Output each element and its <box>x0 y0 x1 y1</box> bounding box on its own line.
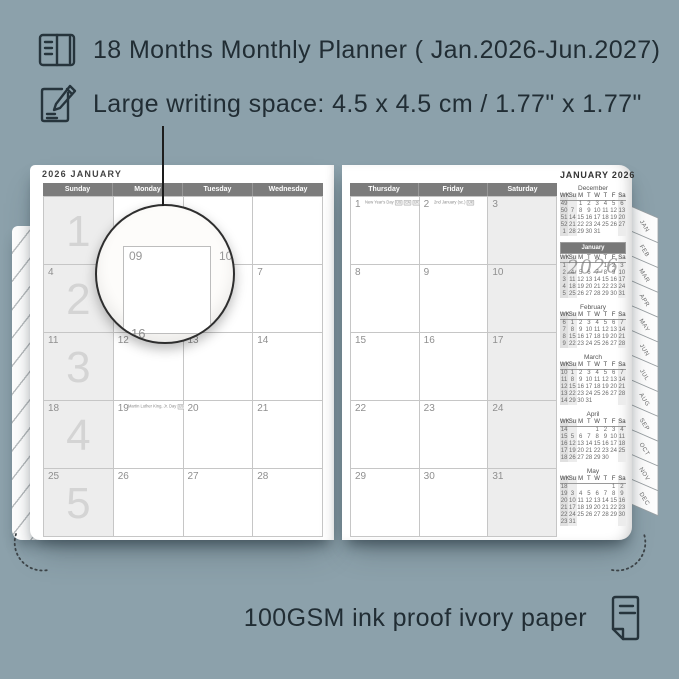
mini-day: 7 <box>618 320 626 328</box>
mini-day: 23 <box>577 391 585 398</box>
calendar-cell: 20 <box>184 401 254 469</box>
mini-calendar: WKSuMTWTFSa49123456507891011121351141516… <box>560 193 626 236</box>
mini-day: 31 <box>593 229 601 236</box>
mini-day: 1 <box>560 263 568 271</box>
mini-day: 8 <box>568 327 576 334</box>
mini-day: 25 <box>601 222 609 229</box>
day-header: Tuesday <box>183 183 253 196</box>
date-number: 15 <box>355 335 366 346</box>
mini-header-cell: T <box>601 312 609 320</box>
mini-day: 29 <box>577 229 585 236</box>
mini-day: 31 <box>618 291 626 298</box>
mini-day <box>618 455 626 462</box>
day-header: Saturday <box>488 183 557 196</box>
mini-month-title: March <box>560 354 626 361</box>
mini-day <box>593 263 601 271</box>
mini-day <box>568 484 576 492</box>
mini-day: 25 <box>618 448 626 455</box>
mini-day: 25 <box>593 391 601 398</box>
mini-header-cell: T <box>585 193 593 201</box>
mini-day: 27 <box>593 512 601 519</box>
date-number: 1 <box>355 199 361 210</box>
mini-day: 6 <box>618 201 626 209</box>
mini-day <box>610 398 618 405</box>
mini-day: 50 <box>560 208 568 215</box>
mini-day: 27 <box>610 341 618 348</box>
mini-header-cell: T <box>601 255 609 263</box>
mini-day: 31 <box>568 519 576 526</box>
mini-day: 15 <box>568 334 576 341</box>
paper-icon <box>605 594 643 642</box>
mini-day: 5 <box>601 370 609 378</box>
mini-day: 7 <box>585 434 593 441</box>
mini-day: 4 <box>601 201 609 209</box>
mini-header-cell: M <box>577 419 585 427</box>
mini-day: 24 <box>585 341 593 348</box>
mini-day: 13 <box>610 327 618 334</box>
day-header: Wednesday <box>253 183 323 196</box>
date-number: 16 <box>424 335 435 346</box>
calendar-cell: 21 <box>253 401 323 469</box>
sidebar-title: JANUARY 2026 <box>560 170 626 180</box>
mini-header-cell: WK <box>560 419 568 427</box>
mini-day: 19 <box>577 284 585 291</box>
mini-day: 16 <box>577 334 585 341</box>
planner-right-page: ThursdayFridaySaturday1New Year's DayUSC… <box>342 165 632 540</box>
mini-day: 23 <box>585 222 593 229</box>
mini-day: 23 <box>618 505 626 512</box>
mini-header-cell: F <box>610 419 618 427</box>
mini-day: 22 <box>577 222 585 229</box>
mini-day: 6 <box>593 491 601 498</box>
mini-day: 10 <box>618 270 626 277</box>
mini-day: 3 <box>593 201 601 209</box>
mini-day <box>601 519 609 526</box>
event-label: Martin Luther King, Jr. Day <box>128 405 176 409</box>
feature-line-writing-space: Large writing space: 4.5 x 4.5 cm / 1.77… <box>36 82 642 126</box>
mini-day: 20 <box>610 384 618 391</box>
mini-day: 7 <box>568 208 576 215</box>
mini-day: 22 <box>568 391 576 398</box>
mini-header-cell: T <box>601 362 609 370</box>
mini-day: 14 <box>618 377 626 384</box>
mini-day: 25 <box>568 291 576 298</box>
calendar-cell: 14 <box>253 333 323 401</box>
mini-day <box>610 519 618 526</box>
mini-day: 6 <box>577 434 585 441</box>
date-number: 2 <box>424 199 430 210</box>
mini-day: 22 <box>601 284 609 291</box>
calendar-cell: 24 <box>488 401 557 469</box>
mini-header-cell: M <box>577 362 585 370</box>
mini-day: 2 <box>610 263 618 271</box>
mini-day: 18 <box>568 284 576 291</box>
day-header-row: ThursdayFridaySaturday <box>350 183 557 196</box>
mini-day: 49 <box>560 201 568 209</box>
mini-day: 14 <box>560 427 568 435</box>
feature-line-months: 18 Months Monthly Planner ( Jan.2026-Jun… <box>36 28 660 72</box>
mini-month-highlight: January <box>560 242 626 254</box>
mini-day: 9 <box>585 208 593 215</box>
mini-day <box>585 519 593 526</box>
mini-day <box>618 398 626 405</box>
mini-header-cell: WK <box>560 362 568 370</box>
mini-day: 20 <box>610 334 618 341</box>
mini-day: 29 <box>568 398 576 405</box>
day-header-row: SundayMondayTuesdayWednesday <box>43 183 323 196</box>
right-calendar-grid: ThursdayFridaySaturday1New Year's DayUSC… <box>350 183 557 537</box>
mini-day <box>601 484 609 492</box>
mini-header-cell: M <box>577 476 585 484</box>
mini-day: 2 <box>601 427 609 435</box>
mini-header-cell: WK <box>560 255 568 263</box>
mini-day: 22 <box>560 512 568 519</box>
date-number: 28 <box>257 471 268 482</box>
mini-calendar: WKSuMTWTFSa61234567789101112131481516171… <box>560 312 626 348</box>
mini-day <box>593 519 601 526</box>
mini-header-cell: F <box>610 193 618 201</box>
mini-calendar: WKSuMTWTFSa10123456711891011121314121516… <box>560 362 626 405</box>
mini-day: 13 <box>577 441 585 448</box>
mini-day: 18 <box>601 215 609 222</box>
mini-day: 21 <box>601 505 609 512</box>
calendar-cell: 3 <box>488 197 557 265</box>
date-number: 30 <box>424 471 435 482</box>
mini-day: 8 <box>560 334 568 341</box>
mini-day <box>585 427 593 435</box>
mini-header-cell: T <box>585 312 593 320</box>
mini-day: 13 <box>610 377 618 384</box>
mini-day: 28 <box>568 229 576 236</box>
date-number: 24 <box>492 403 503 414</box>
mini-day: 11 <box>568 277 576 284</box>
planner-product-image: 18 Months Monthly Planner ( Jan.2026-Jun… <box>0 0 679 679</box>
mini-month-january: JanuaryWKSuMTWTFSa1123245678910311121314… <box>560 242 626 298</box>
day-header: Sunday <box>43 183 113 196</box>
mini-day: 6 <box>610 370 618 378</box>
mini-day: 7 <box>560 327 568 334</box>
mini-day: 24 <box>618 284 626 291</box>
calendar-cell: 15 <box>351 333 420 401</box>
mini-day: 13 <box>618 208 626 215</box>
mini-header-cell: Sa <box>618 419 626 427</box>
mini-month-march: MarchWKSuMTWTFSa101234567118910111213141… <box>560 354 626 405</box>
mini-day: 11 <box>593 327 601 334</box>
calendar-cell: 31 <box>488 469 557 537</box>
mini-day: 19 <box>601 334 609 341</box>
mini-day: 21 <box>585 448 593 455</box>
mini-day <box>618 229 626 236</box>
calendar-cell: 16 <box>420 333 489 401</box>
mini-day: 8 <box>577 208 585 215</box>
mini-day: 24 <box>593 222 601 229</box>
mini-header-cell: Sa <box>618 193 626 201</box>
calendar-cell: 525 <box>44 469 114 537</box>
mini-day: 14 <box>593 277 601 284</box>
mini-day: 23 <box>610 284 618 291</box>
mini-day: 3 <box>568 491 576 498</box>
mini-day: 4 <box>618 427 626 435</box>
calendar-cell: 311 <box>44 333 114 401</box>
mini-day: 17 <box>618 277 626 284</box>
mini-day: 12 <box>585 498 593 505</box>
mini-day: 9 <box>618 491 626 498</box>
mini-day: 2 <box>577 370 585 378</box>
mini-day: 10 <box>585 327 593 334</box>
mini-day: 16 <box>585 215 593 222</box>
mini-day: 2 <box>577 320 585 328</box>
mini-day: 12 <box>560 384 568 391</box>
mini-day: 15 <box>593 441 601 448</box>
mini-day: 7 <box>593 270 601 277</box>
mini-header-cell: Su <box>568 255 576 263</box>
mini-day: 6 <box>610 320 618 328</box>
mini-day: 3 <box>610 427 618 435</box>
mini-header-cell: M <box>577 255 585 263</box>
mini-month-april: AprilWKSuMTWTFSa141234155678910111612131… <box>560 411 626 462</box>
mini-day: 14 <box>568 215 576 222</box>
mini-day: 18 <box>560 484 568 492</box>
magnified-neighbor-below: 16 <box>131 326 145 341</box>
day-header: Friday <box>419 183 488 196</box>
mini-day: 17 <box>610 441 618 448</box>
mini-day: 18 <box>618 441 626 448</box>
mini-month-title: February <box>560 304 626 311</box>
mini-month-december: DecemberWKSuMTWTFSa491234565078910111213… <box>560 185 626 236</box>
magnified-neighbor-right: 10 <box>219 249 232 263</box>
mini-day <box>577 427 585 435</box>
mini-day: 19 <box>610 215 618 222</box>
mini-day: 16 <box>577 384 585 391</box>
mini-day: 27 <box>577 455 585 462</box>
mini-day: 19 <box>568 448 576 455</box>
mini-months-list: DecemberWKSuMTWTFSa491234565078910111213… <box>560 185 626 526</box>
calendar-cell: 27 <box>184 469 254 537</box>
mini-day: 10 <box>560 370 568 378</box>
mini-day: 20 <box>593 505 601 512</box>
mini-day: 28 <box>618 391 626 398</box>
week-number: 4 <box>44 411 113 461</box>
mini-day: 13 <box>593 498 601 505</box>
mini-day: 26 <box>601 341 609 348</box>
mini-day: 4 <box>593 370 601 378</box>
date-number: 11 <box>48 335 58 346</box>
mini-day: 15 <box>601 277 609 284</box>
mini-header-cell: Su <box>568 419 576 427</box>
mini-header-cell: F <box>610 255 618 263</box>
mini-day: 1 <box>593 427 601 435</box>
mini-day: 19 <box>585 505 593 512</box>
mini-day <box>568 427 576 435</box>
mini-day: 18 <box>560 455 568 462</box>
mini-month-title: April <box>560 411 626 418</box>
mini-day: 18 <box>593 384 601 391</box>
mini-day: 1 <box>560 229 568 236</box>
mini-day: 17 <box>585 384 593 391</box>
mini-day: 1 <box>601 263 609 271</box>
mini-day: 3 <box>618 263 626 271</box>
mini-day: 9 <box>560 341 568 348</box>
day-header: Monday <box>113 183 183 196</box>
mini-header-cell: W <box>593 476 601 484</box>
mini-day: 20 <box>585 284 593 291</box>
mini-day: 22 <box>568 341 576 348</box>
date-number: 26 <box>118 471 129 482</box>
event-label: 2nd January (sc.) <box>434 201 466 205</box>
mini-header-cell: F <box>610 362 618 370</box>
mini-day <box>577 263 585 271</box>
mini-day: 16 <box>601 441 609 448</box>
mini-month-title: December <box>560 185 626 192</box>
mini-day <box>577 484 585 492</box>
mini-day: 27 <box>585 291 593 298</box>
mini-day: 11 <box>618 434 626 441</box>
calendar-cell: 418 <box>44 401 114 469</box>
date-number: 29 <box>355 471 366 482</box>
mini-day <box>568 201 576 209</box>
mini-day <box>577 519 585 526</box>
mini-day: 16 <box>610 277 618 284</box>
mini-day: 21 <box>618 384 626 391</box>
calendar-cell: 30 <box>420 469 489 537</box>
mini-day: 19 <box>601 384 609 391</box>
date-number: 4 <box>48 267 54 278</box>
mini-day <box>601 229 609 236</box>
mini-day: 20 <box>618 215 626 222</box>
mini-day: 22 <box>593 448 601 455</box>
mini-header-cell: WK <box>560 193 568 201</box>
mini-day: 30 <box>618 512 626 519</box>
cell-event: 2nd January (sc.)UK <box>434 200 474 205</box>
mini-header-cell: F <box>610 476 618 484</box>
mini-day: 5 <box>577 270 585 277</box>
mini-day: 26 <box>610 222 618 229</box>
mini-day: 29 <box>593 455 601 462</box>
mini-header-cell: F <box>610 312 618 320</box>
mini-day: 14 <box>601 498 609 505</box>
calendar-cell: 23 <box>420 401 489 469</box>
mini-day: 24 <box>585 391 593 398</box>
notebook-icon <box>36 30 78 70</box>
mini-day: 4 <box>593 320 601 328</box>
mini-header-cell: Su <box>568 476 576 484</box>
mini-day: 4 <box>560 284 568 291</box>
mini-header-cell: M <box>577 193 585 201</box>
mini-header-cell: Su <box>568 193 576 201</box>
mini-day: 19 <box>560 491 568 498</box>
mini-day: 12 <box>577 277 585 284</box>
calendar-cell: 28 <box>253 469 323 537</box>
mini-day <box>593 484 601 492</box>
mini-day: 24 <box>610 448 618 455</box>
mini-day: 30 <box>601 455 609 462</box>
mini-header-cell: Sa <box>618 255 626 263</box>
calendar-cell: 19Martin Luther King, Jr. DayUS <box>114 401 184 469</box>
mini-day: 15 <box>610 498 618 505</box>
mini-day: 17 <box>593 215 601 222</box>
day-header: Thursday <box>350 183 419 196</box>
mini-day: 7 <box>601 491 609 498</box>
mini-day: 8 <box>593 434 601 441</box>
mini-day: 12 <box>610 208 618 215</box>
mini-day: 18 <box>577 505 585 512</box>
mini-day: 5 <box>568 434 576 441</box>
mini-day: 20 <box>560 498 568 505</box>
mini-day: 28 <box>593 291 601 298</box>
mini-day: 16 <box>560 441 568 448</box>
mini-day: 12 <box>601 327 609 334</box>
mini-day: 2 <box>585 201 593 209</box>
mini-day: 1 <box>610 484 618 492</box>
event-badge: US <box>395 200 402 205</box>
mini-day: 1 <box>577 201 585 209</box>
mini-day: 15 <box>568 384 576 391</box>
date-number: 7 <box>257 267 263 278</box>
mini-day: 5 <box>560 291 568 298</box>
mini-day: 6 <box>560 320 568 328</box>
mini-day: 11 <box>593 377 601 384</box>
magnifier-circle: 09 10 16 <box>95 204 235 344</box>
mini-day: 9 <box>601 434 609 441</box>
calendar-body: 1New Year's DayUSCAUKAUNZ22nd January (s… <box>350 196 557 537</box>
mini-day <box>593 398 601 405</box>
feature-line-paper: 100GSM ink proof ivory paper <box>0 592 643 644</box>
mini-header-cell: T <box>585 362 593 370</box>
mini-day: 28 <box>585 455 593 462</box>
mini-day: 26 <box>568 455 576 462</box>
feature-months-text: 18 Months Monthly Planner ( Jan.2026-Jun… <box>93 36 660 65</box>
mini-day: 17 <box>560 448 568 455</box>
mini-day: 8 <box>610 491 618 498</box>
mini-day: 29 <box>610 512 618 519</box>
feature-writing-space-text: Large writing space: 4.5 x 4.5 cm / 1.77… <box>93 90 642 119</box>
calendar-cell: 22nd January (sc.)UK <box>420 197 489 265</box>
magnified-date-number: 09 <box>129 249 142 263</box>
mini-header-cell: W <box>593 312 601 320</box>
mini-month-may: MayWKSuMTWTFSa18121934567892010111213141… <box>560 468 626 526</box>
mini-day: 20 <box>577 448 585 455</box>
calendar-cell: 10 <box>488 265 557 333</box>
mini-header-cell: T <box>601 419 609 427</box>
mini-day: 24 <box>568 512 576 519</box>
mini-day: 22 <box>610 505 618 512</box>
calendar-cell: 9 <box>420 265 489 333</box>
mini-day: 21 <box>593 284 601 291</box>
mini-day: 23 <box>577 341 585 348</box>
mini-day: 11 <box>560 377 568 384</box>
event-badge: UK <box>467 200 474 205</box>
mini-day: 2 <box>560 270 568 277</box>
mini-day: 5 <box>601 320 609 328</box>
mini-day: 3 <box>585 370 593 378</box>
mini-day: 51 <box>560 215 568 222</box>
mini-day: 27 <box>618 222 626 229</box>
mini-day: 2 <box>618 484 626 492</box>
pencil-icon <box>36 83 78 125</box>
date-number: 3 <box>492 199 498 210</box>
date-number: 14 <box>257 335 268 346</box>
mini-day: 14 <box>585 441 593 448</box>
mini-day <box>585 484 593 492</box>
mini-day: 3 <box>585 320 593 328</box>
mini-day: 5 <box>610 201 618 209</box>
mini-day: 8 <box>601 270 609 277</box>
mini-header-cell: T <box>601 193 609 201</box>
mini-header-cell: T <box>601 476 609 484</box>
mini-header-cell: T <box>585 255 593 263</box>
date-number: 22 <box>355 403 366 414</box>
mini-day <box>568 263 576 271</box>
